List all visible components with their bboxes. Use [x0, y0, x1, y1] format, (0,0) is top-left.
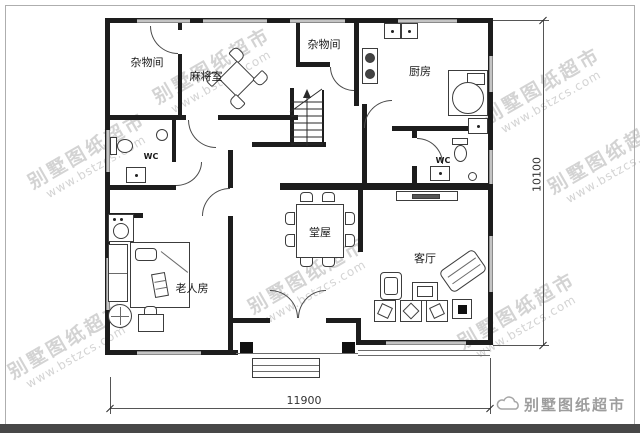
bed-icon — [130, 242, 190, 308]
door-arc — [364, 100, 392, 128]
chair — [322, 192, 335, 202]
stairs-icon — [288, 86, 328, 150]
door-arc — [150, 26, 178, 54]
window — [489, 56, 493, 92]
sofa-icon — [380, 272, 402, 300]
dimension-label-width: 11900 — [276, 394, 332, 407]
window — [386, 341, 466, 345]
wall — [218, 115, 298, 120]
terrace-edge — [358, 355, 490, 356]
window — [489, 236, 493, 292]
chair — [345, 234, 355, 247]
cabinet-icon — [468, 118, 488, 134]
porch-column — [342, 342, 355, 353]
coffee-table — [412, 282, 438, 301]
porch-edge — [236, 353, 358, 354]
fan-icon — [108, 304, 132, 328]
toilet-icon — [110, 137, 117, 155]
porch-steps — [252, 358, 320, 378]
door-arc — [176, 162, 202, 186]
water-heater-icon — [448, 70, 488, 116]
room-label-mahjong: 麻将室 — [182, 68, 230, 84]
logo-cloud-icon — [496, 395, 522, 413]
entry-door-arc — [270, 290, 298, 318]
basin-icon — [468, 172, 477, 181]
room-label-main-hall: 堂屋 — [298, 224, 342, 240]
chair — [322, 257, 335, 267]
room-label-kitchen: 厨房 — [394, 63, 446, 79]
chair — [300, 257, 313, 267]
washer-icon — [108, 214, 134, 242]
wall — [356, 318, 361, 345]
stove-icon — [362, 48, 378, 84]
side-table — [452, 299, 472, 319]
wall — [412, 130, 417, 138]
chair — [285, 234, 295, 247]
wall — [358, 190, 363, 252]
room-label-elder: 老人房 — [164, 280, 220, 296]
window — [489, 150, 493, 184]
wall — [105, 185, 176, 190]
nightstand-icon — [108, 244, 128, 302]
basin-icon — [156, 129, 168, 141]
wall — [178, 54, 182, 118]
floor-plan-page: { "brand": { "watermark_text": "别墅图纸超市",… — [0, 0, 640, 433]
sink-icon — [384, 23, 401, 39]
wall — [326, 318, 360, 323]
dimension-label-height: 10100 — [531, 154, 544, 196]
door-arc — [330, 67, 354, 91]
wall — [172, 119, 176, 162]
window — [137, 351, 201, 355]
floor-plan: 杂物间 麻将室 杂物间 厨房 WC WC 堂屋 客厅 老人房 11900 101… — [0, 0, 640, 433]
room-label-storage-2: 杂物间 — [297, 36, 351, 52]
side-table — [374, 300, 396, 322]
chair — [345, 212, 355, 225]
sink-icon — [126, 167, 146, 183]
door-arc — [202, 188, 230, 216]
porch-column — [240, 342, 253, 353]
tv-cabinet — [396, 191, 458, 201]
chair — [300, 192, 313, 202]
chair — [228, 46, 246, 64]
room-label-storage-1: 杂物间 — [118, 54, 176, 70]
sink-icon — [430, 166, 450, 181]
chair — [228, 94, 246, 112]
wall — [228, 216, 233, 355]
toilet-icon — [117, 139, 133, 153]
window — [137, 19, 190, 23]
wall — [233, 318, 270, 323]
dimension-line — [110, 408, 491, 409]
window — [203, 19, 267, 23]
room-label-wc-right: WC — [428, 156, 458, 165]
wall — [228, 150, 233, 188]
sink-icon — [401, 23, 418, 39]
plant-icon — [426, 300, 448, 322]
wall — [354, 22, 359, 106]
desk-icon — [138, 314, 164, 332]
terrace-edge — [358, 350, 490, 351]
door-arc — [188, 120, 216, 148]
entry-door-arc — [298, 290, 326, 318]
wall — [296, 62, 330, 67]
chair — [252, 70, 270, 88]
wall — [280, 183, 492, 190]
room-label-wc-left: WC — [136, 152, 166, 161]
window — [290, 19, 345, 23]
plant-icon — [400, 300, 422, 322]
wall — [178, 22, 182, 30]
room-label-living: 客厅 — [400, 250, 450, 266]
toilet-icon — [452, 138, 468, 145]
chair — [285, 212, 295, 225]
